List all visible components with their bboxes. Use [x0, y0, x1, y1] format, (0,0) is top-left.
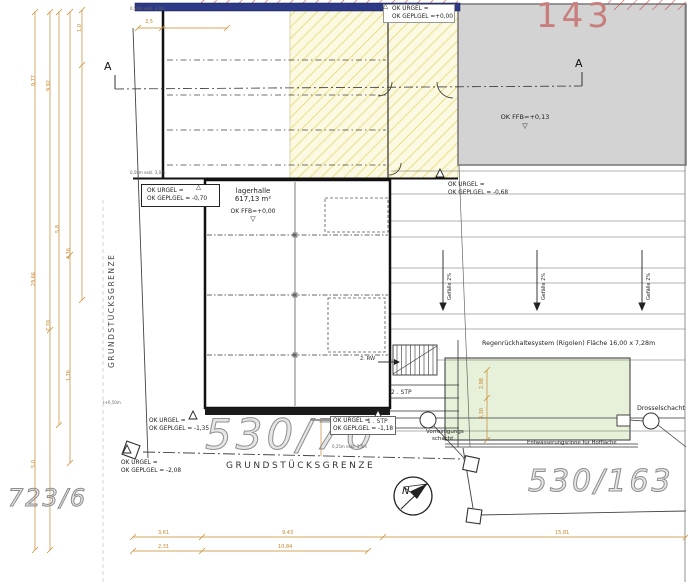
rigole-title: Regenrückhaltesystem (Rigolen) Fläche 16… — [482, 340, 655, 347]
vorreinigungsschacht-circle — [420, 412, 436, 428]
parcel-number-723-6: 723/6 — [8, 484, 87, 512]
hall-ffb: OK FFB=+0,00 — [222, 208, 284, 215]
level-label-south3: OK URGEL = OK GEPLGEL = -2,08 — [121, 460, 181, 475]
yellow-hatched-area — [290, 10, 458, 178]
level-label-top: OK URGEL = OK GEPLGEL =+0,00 — [383, 4, 455, 23]
dim-left-0: 9,77 — [31, 75, 37, 86]
vorreinigungsschacht-label: Vorreinigungs schacht — [426, 429, 464, 443]
dim-left-4: 4,76 — [66, 248, 72, 259]
level-hall-left-l1: OK URGEL = — [147, 188, 217, 196]
parking-spot-2: 2 . STP — [391, 389, 412, 396]
wall-note-4: 0,25m exkl. 3,0m — [332, 444, 367, 449]
level-hall-left-l2: OK GEPLGEL = -0,70 — [147, 196, 217, 204]
level-top-l1: OK URGEL = — [392, 6, 452, 14]
existing-ffb-text: OK FFB=+0,13 — [495, 114, 555, 122]
section-marker-a-left: A — [104, 60, 112, 73]
level-triangle-top: △ — [383, 2, 388, 10]
dim-left-2: 1,0 — [77, 24, 83, 32]
boundary-label-left: GRUNDSTÜCKSGRENZE — [107, 228, 116, 368]
wall-note-1: 0,50m exkl. 3,0m — [130, 6, 165, 11]
section-marker-a-right: A — [575, 57, 583, 70]
dim-left-1: 9,92 — [46, 80, 52, 91]
dim-bottom2-1: 10,84 — [278, 544, 292, 550]
drosselschacht-label: Drosselschacht — [637, 405, 685, 412]
rinne-label: Entwässerungsrinne für Hoffläche — [527, 440, 617, 446]
level-top-l2: OK GEPLGEL =+0,00 — [392, 14, 452, 22]
hall-name: lagerhalle — [222, 187, 284, 195]
level-south3-l1: OK URGEL = — [121, 460, 181, 468]
dim-rigole-0: 2,98 — [479, 378, 485, 389]
level-south3-l2: OK GEPLGEL = -2,08 — [121, 468, 181, 476]
red-hatch-strip-right — [608, 0, 686, 10]
dim-left-8: 5,0 — [31, 460, 37, 468]
north-arrow — [394, 477, 432, 515]
dim-left-5: 29,66 — [31, 272, 37, 286]
boundary-label-bottom: GRUNDSTÜCKSGRENZE — [226, 461, 375, 471]
parcel-number-143: 143 — [536, 0, 613, 36]
wall-note-3: t+0,50m — [103, 400, 121, 405]
dim-bottom2-0: 2,31 — [158, 544, 169, 550]
slope-label-3: Gefälle 2% — [646, 252, 652, 300]
level-south1-l1: OK URGEL = — [149, 418, 209, 426]
slope-label-1: Gefälle 2% — [447, 252, 453, 300]
hall-ffb-marker: ▽ — [222, 215, 284, 223]
parking-spot-1: 1 . STP — [367, 418, 388, 425]
existing-building-ffb: OK FFB=+0,13 ▽ — [495, 114, 555, 130]
dim-bottom1-1: 9,43 — [282, 530, 293, 536]
level-label-yard: OK URGEL = OK GEPLGEL = -0,68 — [448, 182, 508, 197]
dim-bottom1-0: 3,61 — [158, 530, 169, 536]
level-triangle-hall-left: △ — [196, 183, 201, 191]
dim-bottom1-2: 15,81 — [555, 530, 569, 536]
level-label-hall-left: OK URGEL = OK GEPLGEL = -0,70 — [141, 184, 220, 207]
vorreinigung-l2: schacht — [426, 436, 464, 443]
dim-left-6: 7,70 — [46, 320, 52, 331]
dim-rigole-1: 4,30 — [479, 408, 485, 419]
dim-hall-top: 3,5 — [145, 19, 153, 25]
level-label-south1: OK URGEL = OK GEPLGEL = -1,35 — [149, 418, 209, 433]
hall-label: lagerhalle 617,13 m² OK FFB=+0,00 ▽ — [222, 187, 284, 223]
site-plan: 143 723/6 530/70 530/163 GRUNDSTÜCKSGREN… — [0, 0, 688, 582]
drosselschacht-circle — [643, 413, 659, 429]
hall-area: 617,13 m² — [222, 195, 284, 203]
level-south1-l2: OK GEPLGEL = -1,35 — [149, 426, 209, 434]
slope-label-2: Gefälle 2% — [541, 252, 547, 300]
vorreinigung-l1: Vorreinigungs — [426, 429, 464, 436]
north-label: N — [402, 486, 409, 497]
parcel-number-530-163: 530/163 — [528, 464, 674, 499]
dim-left-3: 5,8 — [55, 225, 61, 233]
dim-left-7: 1,76 — [66, 370, 72, 381]
escape-route-label: 2. RW — [360, 356, 375, 362]
level-yard-l1: OK URGEL = — [448, 182, 508, 190]
level-yard-l2: OK GEPLGEL = -0,68 — [448, 190, 508, 198]
wall-note-2: 0,50m exkl. 3,0m — [130, 170, 165, 175]
rigole-green-area — [445, 358, 630, 440]
level-south2-l2: OK GEPLGEL = -1,18 — [333, 426, 393, 434]
existing-ffb-marker: ▽ — [495, 122, 555, 130]
